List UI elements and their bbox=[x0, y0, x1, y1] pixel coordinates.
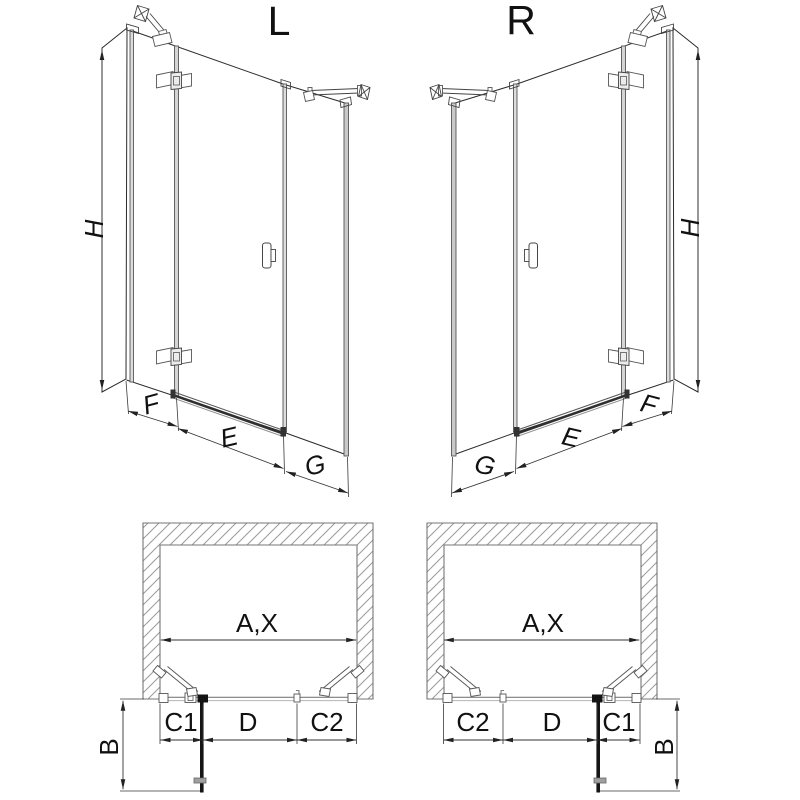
dim-label-h-left: H bbox=[79, 219, 109, 238]
dim-label-g-right: G bbox=[472, 448, 498, 482]
dim-label-b-right: B bbox=[649, 738, 679, 755]
dim-label-e-left: E bbox=[217, 420, 241, 453]
elevation-left-view bbox=[102, 6, 370, 498]
dim-label-e-right: E bbox=[559, 420, 583, 453]
dim-label-c2-right: C2 bbox=[456, 707, 489, 737]
elevation-right-view bbox=[430, 6, 698, 498]
dim-label-f-right: F bbox=[637, 387, 662, 421]
dim-label-b-left: B bbox=[94, 738, 124, 755]
dim-label-g-left: G bbox=[302, 448, 328, 482]
technical-drawing-page: L H F E G R H F E G A,X C1 D C2 B A,X C2… bbox=[0, 0, 800, 800]
view-label-left: L bbox=[268, 0, 291, 44]
dim-label-c1-left: C1 bbox=[164, 707, 197, 737]
dim-label-ax-left: A,X bbox=[236, 608, 278, 638]
dim-label-h-right: H bbox=[675, 218, 705, 237]
dim-label-d-left: D bbox=[239, 707, 258, 737]
labels-layer: L H F E G R H F E G A,X C1 D C2 B A,X C2… bbox=[79, 0, 705, 756]
dim-label-c2-left: C2 bbox=[310, 707, 343, 737]
dim-label-c1-right: C1 bbox=[602, 707, 635, 737]
shower-door-technical-drawing: L H F E G R H F E G A,X C1 D C2 B A,X C2… bbox=[0, 0, 800, 800]
dim-label-ax-right: A,X bbox=[522, 608, 564, 638]
dim-label-d-right: D bbox=[543, 707, 562, 737]
view-label-right: R bbox=[506, 0, 536, 43]
